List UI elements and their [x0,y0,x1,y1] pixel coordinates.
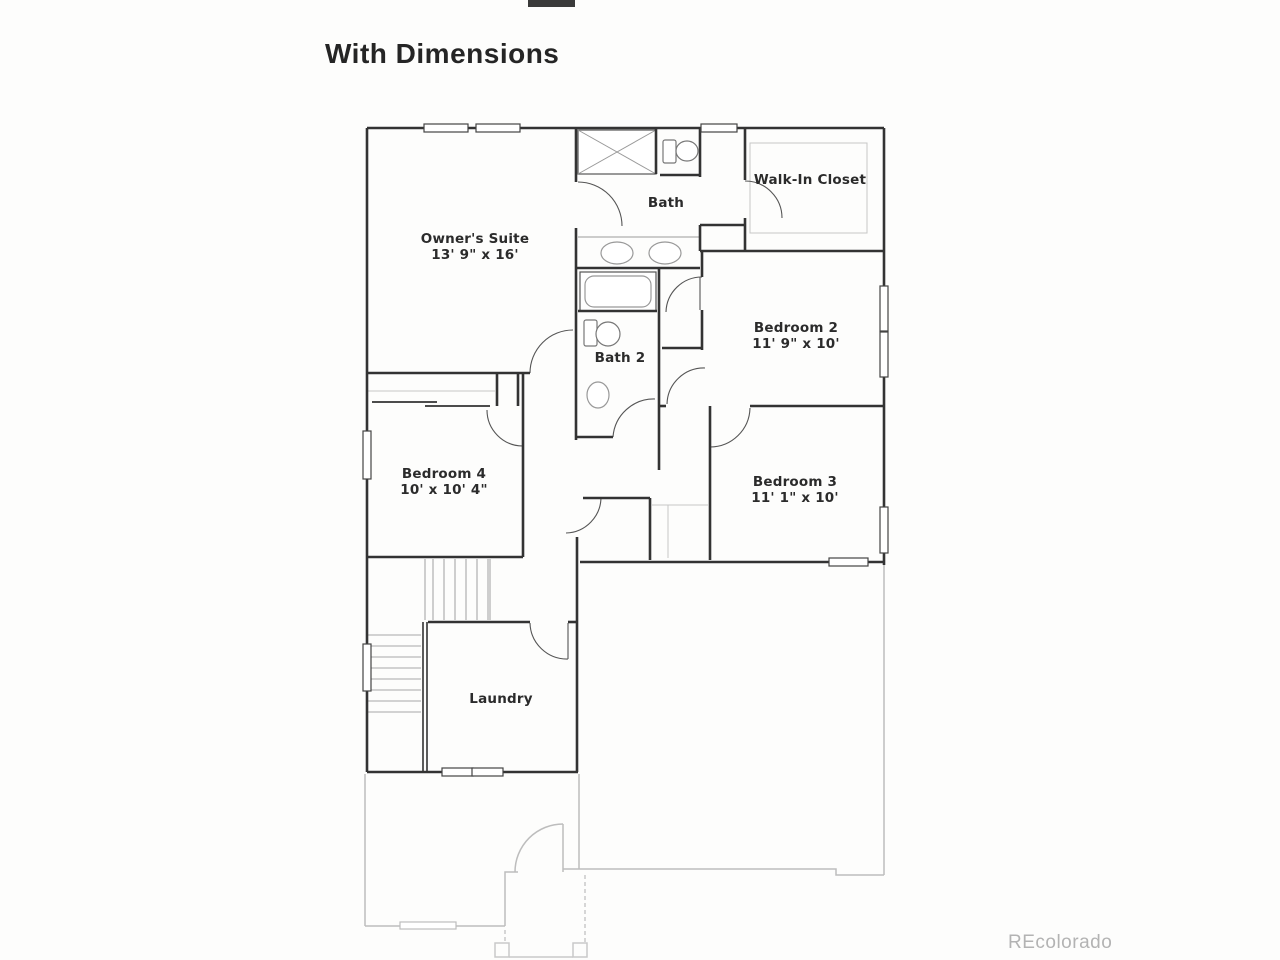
shower-fixture [578,130,656,174]
stairs [368,559,490,712]
bathtub-fixture [580,272,656,311]
sink-fixture [587,382,609,408]
bedroom2-door-arc [666,277,702,312]
window [701,124,737,132]
entry-door-arc [515,824,563,872]
room-label: Bedroom 211' 9" x 10' [752,320,839,352]
door-arcs [487,181,782,659]
room-label: Bedroom 410' x 10' 4" [400,466,487,498]
room-label: Laundry [469,691,532,707]
porch-post [573,943,587,957]
window [363,644,371,691]
porch-post [495,943,509,957]
floorplan-page: With Dimensions [0,0,1280,960]
bath-door-arc [578,182,622,226]
room-label: Walk-In Closet [754,172,867,188]
window [829,558,868,566]
hall-door-arc [667,368,705,404]
toilet-fixture [663,140,698,163]
window [442,768,473,776]
window [472,768,503,776]
room-label: Owner's Suite13' 9" x 16' [421,231,529,263]
vanity-sinks [601,242,681,264]
ground-floor-outline [365,565,884,957]
bedroom4-door-arc [487,410,523,446]
laundry-door-arc [530,623,568,659]
window [880,332,888,377]
walls [367,128,884,772]
room-label: Bath 2 [595,350,646,366]
floor-plan: Owner's Suite13' 9" x 16'BathWalk-In Clo… [0,0,1280,960]
window [424,124,468,132]
window [880,507,888,553]
bypass-closet-doors [372,402,490,406]
bedroom3-door-arc [710,408,750,447]
owner-suite-door-arc [530,330,573,373]
windows [363,124,888,776]
ground-floor-window [400,922,456,929]
sink-fixture [601,242,633,264]
porch [495,875,587,957]
watermark: REcolorado [1008,932,1112,954]
toilet-fixture [584,320,620,346]
linen-door-arc [566,497,601,533]
sink-fixture [649,242,681,264]
window [476,124,520,132]
window [363,431,371,479]
bath2-door-arc [613,399,655,437]
room-label: Bath [648,195,684,211]
window [880,286,888,331]
room-label: Bedroom 311' 1" x 10' [751,474,838,506]
